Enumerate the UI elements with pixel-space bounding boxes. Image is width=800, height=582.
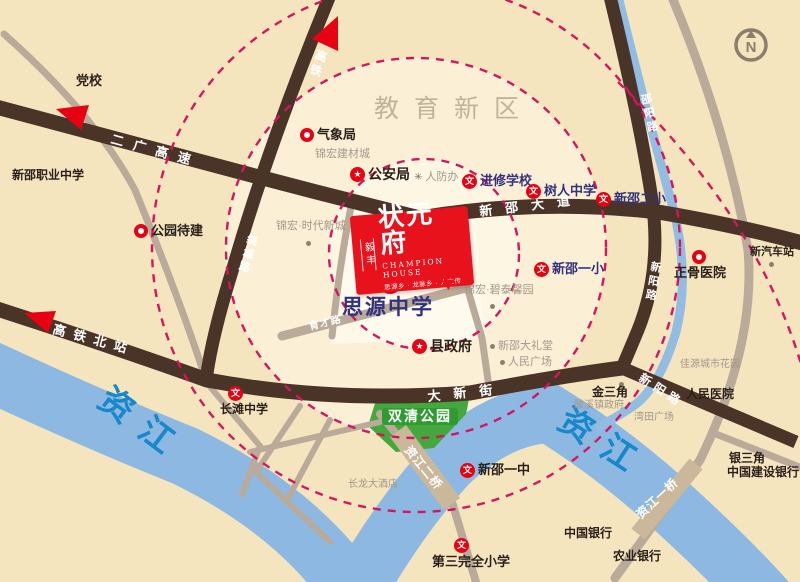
poi-label: 农业银行 [613,550,661,563]
dot-marker-icon [490,344,495,349]
poi-label: 中国银行 [564,527,612,540]
poi-label: 双清公园 [388,409,452,424]
poi-gongyuan-daijian: 公园待建 [134,224,203,238]
poi-dangxiao: 党校 [76,74,102,88]
school-marker-icon: 文 [534,262,549,277]
poi-changtan-zhongxue: 文长滩中学 [220,386,268,416]
school-marker-icon: 文 [228,386,243,401]
poi-jinhong-bitai: 锦宏·碧泰馨园 [464,284,534,296]
poi-jinhong-jiancaicheng: 锦宏建材城 [315,148,370,160]
poi-label: 新邵一小 [552,262,604,276]
poi-jianshe-yinhang: 中国建设银行 [727,466,799,479]
poi-label: 教育新区 [374,96,534,124]
poi-wantian-guangchang: 湾田广场 [634,412,674,423]
poi-label: 中国建设银行 [727,466,799,479]
poi-label: 第三完全小学 [432,555,510,569]
school-marker-icon: 文 [596,192,611,207]
poi-gonganju: ★公安局 [350,167,410,182]
poi-label: 党校 [76,74,102,88]
poi-disan-wanquan-xiaoxue: 文第三完全小学 [432,538,510,569]
ring-marker-icon [300,128,314,142]
poi-label: 新邵一中 [478,463,530,477]
school-marker-icon: 文 [462,174,477,189]
ring-marker-icon [692,250,706,264]
poi-label: 进修学校 [480,174,532,188]
star-marker-icon: ★ [412,339,427,354]
poi-label: 锦宏·时代新城 [276,220,346,232]
poi-jiayuan-huayuan: 佳源城市花园 [680,359,740,370]
poi-xinshao-dalitang: 新邵大礼堂 [490,340,553,352]
poi-suanxi-zhenzhengfu: 酸溪镇政府 [574,400,624,411]
school-marker-icon: 文 [454,538,469,553]
poi-education-district: 教育新区 [374,96,534,124]
poi-label: 人民广场 [508,356,552,368]
poi-xinshao-vocational: 新邵职业中学 [12,169,84,182]
location-map: N 二广高速新邵大道大新街高铁北站高铁绕城路邵阳路新阳路新阳路育才路资江二桥资江… [0,0,800,582]
star-marker-icon: ★ [350,167,365,182]
poi-jinhong-shidai: 锦宏·时代新城 [276,220,346,232]
poi-label: 树人中学 [544,184,596,198]
logo-brand: 毅丰 [360,238,377,271]
poi-xinshao-erxiao: 文新邵二小 [596,192,666,207]
poi-label: 新邵二小 [614,192,666,206]
logo-title: 状元府 [377,198,463,257]
poi-jinxiu-xuexiao: 文进修学校 [462,174,532,189]
poi-label: 金三角 [592,386,628,399]
poi-label: 人民医院 [686,388,734,401]
school-marker-icon: 文 [526,184,541,199]
poi-renmin-yiyuan: 人民医院 [686,388,734,401]
dot-marker-icon [490,304,495,309]
poi-xinshao-yizhong: 文新邵一中 [460,463,530,478]
asterisk-marker-icon: ✳ [414,172,422,183]
poi-shuren-zhongxue: 文树人中学 [526,184,596,199]
poi-label: 锦宏·碧泰馨园 [464,284,534,296]
compass-icon: N [736,30,766,60]
ring-marker-icon [134,224,148,238]
poi-xinshao-yixiao: 文新邵一小 [534,262,604,277]
poi-zhongguo-yinhang: 中国银行 [564,527,612,540]
poi-zhengu-yiyuan: 正骨医院 [674,250,726,280]
poi-yinsanjiao: 银三角 [729,452,765,465]
dot-marker-icon [500,360,505,365]
poi-renmin-guangchang: 人民广场 [500,356,552,368]
poi-label: 正骨医院 [674,266,726,280]
poi-label: 佳源城市花园 [680,359,740,370]
road-label: 高铁北站 [51,321,136,357]
poi-label: 长滩中学 [220,403,268,416]
poi-label: 人防办 [425,171,458,183]
poi-nongye-yinhang: 农业银行 [613,550,661,563]
poi-label: 公园待建 [151,224,203,238]
poi-label: 新邵职业中学 [12,169,84,182]
poi-label: 银三角 [729,452,765,465]
champion-house-logo: 毅丰 状元府 CHAMPION HOUSE 思源乡 · 龙脉乡 · 人文传承 [350,206,474,295]
poi-label: 县政府 [430,339,472,354]
poi-changlong-dajiudian: 长龙大酒店 [348,479,398,490]
poi-label: 锦宏建材城 [315,148,370,160]
poi-label: 新邵大礼堂 [498,340,553,352]
poi-xin-qichezhan: 新汽车站 [750,246,794,258]
dot-marker-icon [769,262,774,267]
poi-renfangban: ✳人防办 [414,171,458,183]
poi-shuangqing-gongyuan: 双清公园 [382,408,458,425]
poi-jinsanjiao: 金三角 [592,386,628,399]
poi-label: 湾田广场 [634,412,674,423]
poi-xianzhengfu: ★县政府 [412,339,472,354]
poi-qixiangju: 气象局 [300,128,356,142]
dot-marker-icon [306,241,311,246]
poi-label: 酸溪镇政府 [574,400,624,411]
poi-label: 气象局 [317,128,356,142]
svg-text:N: N [746,39,757,56]
poi-label: 新汽车站 [750,246,794,258]
poi-label: 公安局 [368,167,410,182]
poi-label: 长龙大酒店 [348,479,398,490]
school-marker-icon: 文 [460,463,475,478]
